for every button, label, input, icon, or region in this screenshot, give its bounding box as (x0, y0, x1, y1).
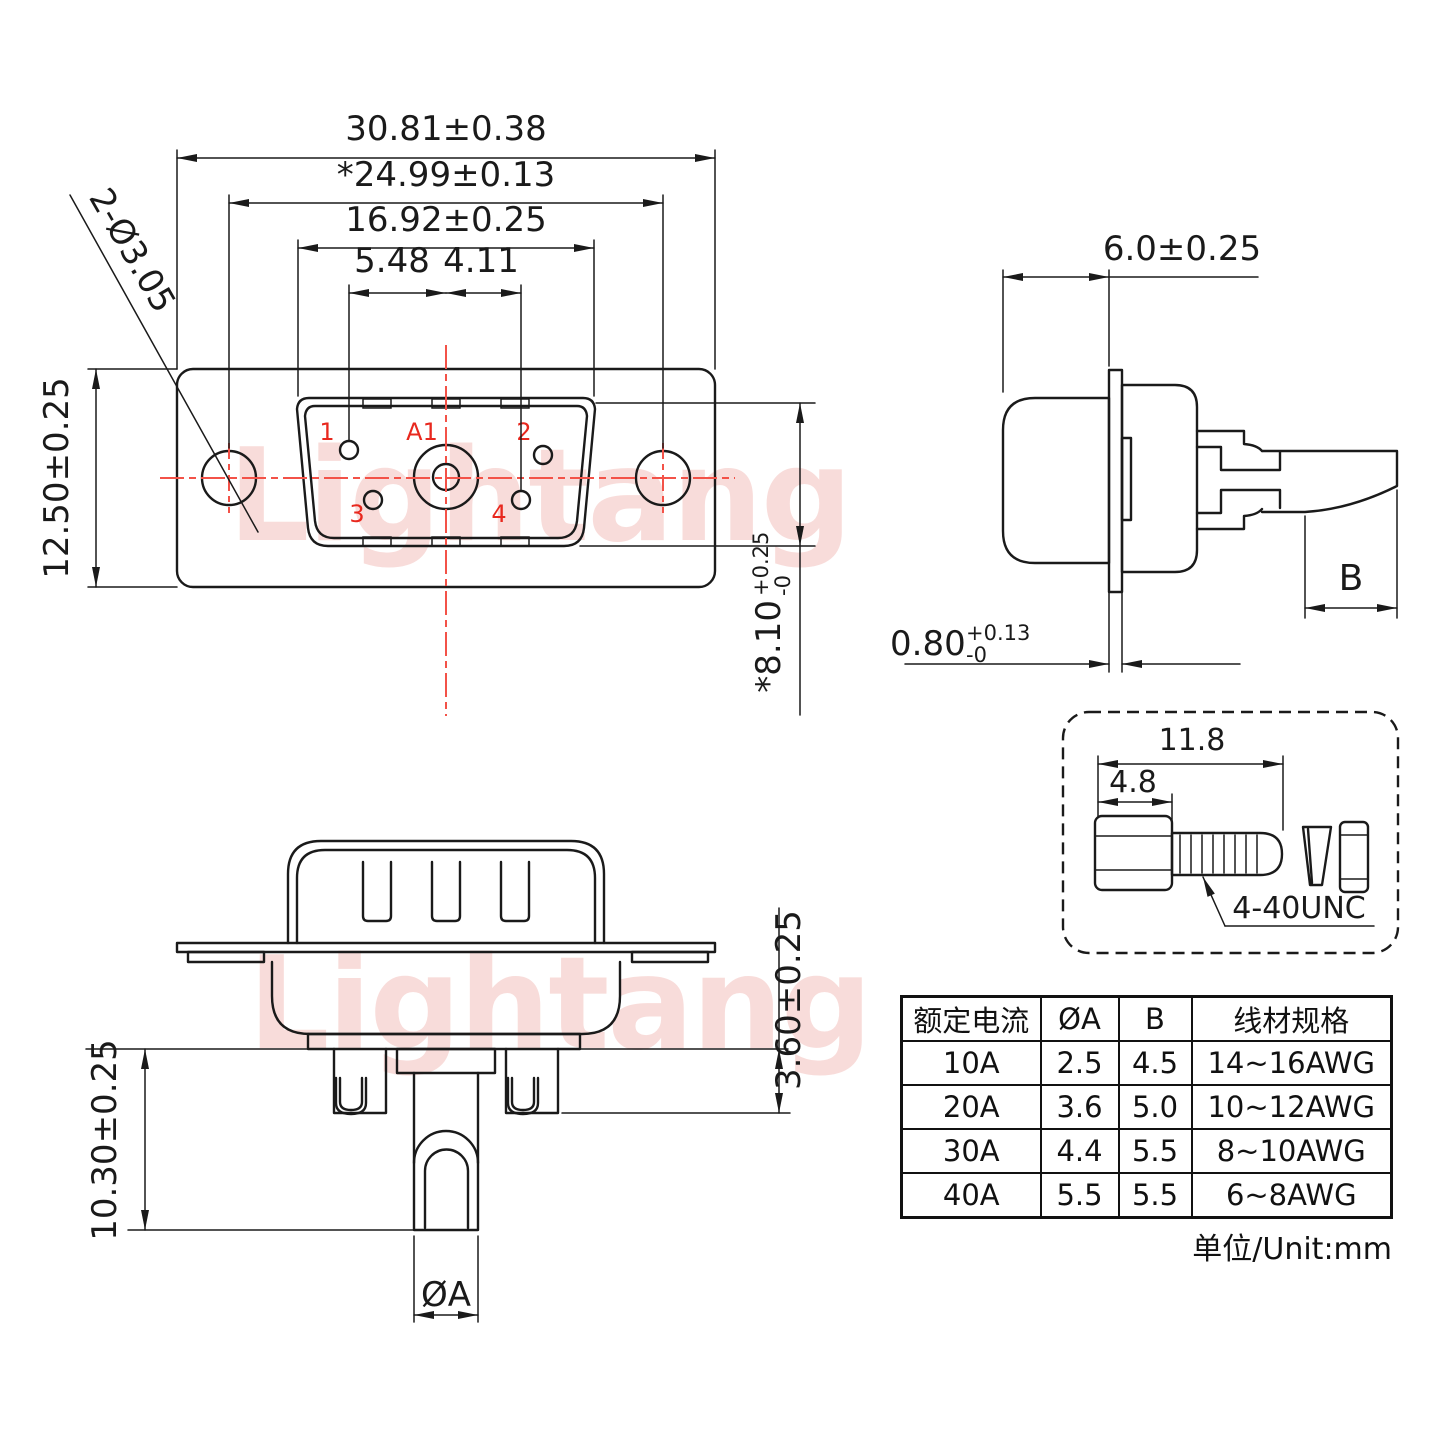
rear-cup-right-u (508, 1078, 538, 1114)
dim-pin4-offset: 4.11 (443, 241, 519, 281)
rear-cup-left-u (336, 1078, 366, 1114)
table-row: 30A 4.4 5.5 8~10AWG (902, 1129, 1392, 1173)
dim-screw-head-length: 4.8 (1109, 765, 1157, 800)
dim-flange-thickness: 0.80 +0.13 -0 (890, 621, 1030, 667)
side-insert-strip (1122, 438, 1131, 520)
cell-b-30a: 5.5 (1119, 1129, 1192, 1173)
cell-current-10a: 10A (902, 1041, 1041, 1085)
dim-shell-height-tol-minus: -0 (771, 575, 795, 596)
dim-pin-diameter: ØA (421, 1275, 471, 1315)
side-view: 6.0±0.25 0.80 +0.13 -0 B (890, 229, 1397, 672)
side-body (1122, 385, 1197, 572)
pin-label-3: 3 (349, 500, 364, 528)
table-row: 20A 3.6 5.0 10~12AWG (902, 1085, 1392, 1129)
cell-current-40a: 40A (902, 1173, 1041, 1218)
cell-dia-30a: 4.4 (1041, 1129, 1119, 1173)
side-wire-barrel (1262, 451, 1397, 512)
thread-spec-label: 4-40UNC (1232, 891, 1365, 926)
dim-shell-width: 16.92±0.25 (345, 200, 547, 240)
cell-wire-20a: 10~12AWG (1192, 1085, 1392, 1129)
screw-head (1095, 816, 1172, 890)
table-row: 40A 5.5 5.5 6~8AWG (902, 1173, 1392, 1218)
dim-flange-height: 12.50±0.25 (37, 377, 77, 579)
col-header-b: B (1119, 997, 1192, 1042)
cell-wire-10a: 14~16AWG (1192, 1041, 1392, 1085)
pin-label-a1: A1 (406, 418, 438, 446)
rear-shell-outer (288, 841, 604, 943)
cell-current-20a: 20A (902, 1085, 1041, 1129)
col-header-wire-gauge: 线材规格 (1192, 997, 1392, 1042)
dim-shell-height-tol-plus: +0.25 (749, 532, 773, 596)
dim-flange-thickness-tol-plus: +0.13 (966, 621, 1030, 645)
cell-current-30a: 30A (902, 1129, 1041, 1173)
screw-threads (1180, 835, 1257, 873)
rear-view: 10.30±0.25 3.60±0.25 ØA (85, 841, 809, 1322)
cell-b-20a: 5.0 (1119, 1085, 1192, 1129)
cell-wire-30a: 8~10AWG (1192, 1129, 1392, 1173)
cell-b-10a: 4.5 (1119, 1041, 1192, 1085)
wedge-part (1303, 827, 1331, 885)
dim-cup-label: B (1339, 558, 1364, 599)
cell-dia-20a: 3.6 (1041, 1085, 1119, 1129)
dim-shell-height-main: *8.10 (749, 600, 789, 693)
front-view: 1 A1 2 3 4 30.81±0.38 *24.99±0.13 16.92±… (37, 109, 815, 716)
cell-dia-10a: 2.5 (1041, 1041, 1119, 1085)
dim-flange-thickness-tol-minus: -0 (966, 643, 987, 667)
spec-table-header-row: 额定电流 ØA B 线材规格 (902, 997, 1392, 1042)
dim-flange-thickness-main: 0.80 (890, 624, 966, 664)
dim-pin1-offset: 5.48 (354, 241, 430, 281)
pin-label-4: 4 (491, 500, 506, 528)
side-flange (1109, 370, 1122, 592)
screw-detail: 11.8 4.8 4-40UNC (1063, 712, 1398, 953)
rear-shell-slots (363, 862, 529, 921)
pin-label-1: 1 (319, 418, 334, 446)
table-row: 10A 2.5 4.5 14~16AWG (902, 1041, 1392, 1085)
side-pin-bottom (1197, 490, 1280, 529)
side-shell (1003, 398, 1109, 563)
cell-b-40a: 5.5 (1119, 1173, 1192, 1218)
pin-label-2: 2 (516, 418, 531, 446)
drawing-canvas: Lightang Lightang 1 A1 2 3 4 (0, 0, 1440, 1440)
cell-dia-40a: 5.5 (1041, 1173, 1119, 1218)
cell-wire-40a: 6~8AWG (1192, 1173, 1392, 1218)
hole-leader-line (70, 195, 258, 532)
dim-hole-span: *24.99±0.13 (337, 155, 556, 195)
col-header-dia-a: ØA (1041, 997, 1119, 1042)
unit-note: 单位/Unit:mm (1080, 1224, 1392, 1268)
dim-pin-length: 10.30±0.25 (85, 1039, 125, 1241)
spec-table: 额定电流 ØA B 线材规格 10A 2.5 4.5 14~16AWG 20A … (900, 995, 1393, 1219)
dim-screw-total-length: 11.8 (1159, 723, 1226, 758)
dim-shell-depth: 6.0±0.25 (1103, 229, 1261, 269)
cylinder-part (1340, 822, 1368, 892)
col-header-rated-current: 额定电流 (902, 997, 1041, 1042)
dim-cup-protrusion: 3.60±0.25 (769, 910, 809, 1090)
dim-mount-holes: 2-Ø3.05 (81, 181, 184, 319)
rear-contact-a1-cup (414, 1131, 478, 1228)
screw-shaft (1172, 833, 1282, 875)
dim-flange-width: 30.81±0.38 (345, 109, 547, 149)
